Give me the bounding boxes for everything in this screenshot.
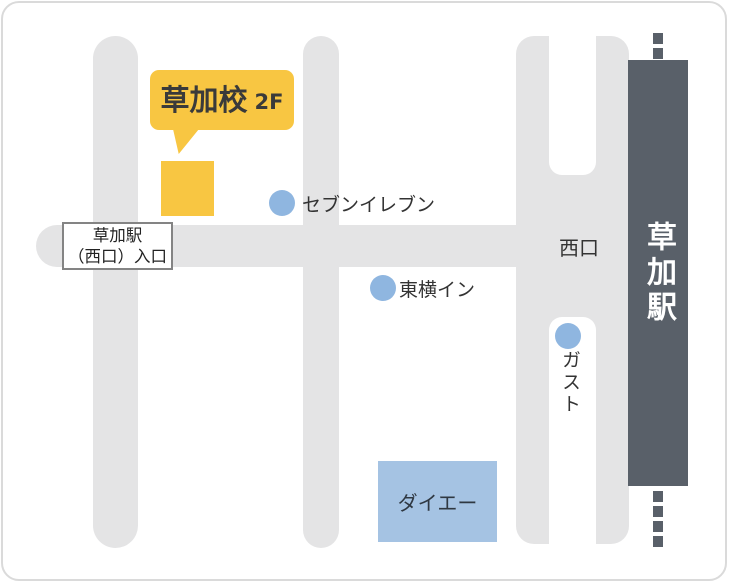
plaza-gap-top bbox=[549, 21, 596, 175]
road-vertical-middle bbox=[303, 36, 339, 548]
school-callout-bubble: 草加校 2F bbox=[150, 70, 294, 130]
west-exit-label: 西口 bbox=[559, 238, 599, 258]
daiei-label: ダイエー bbox=[398, 487, 478, 516]
railway-track-bottom bbox=[653, 491, 663, 551]
toyoko-inn-label: 東横イン bbox=[399, 281, 475, 300]
road-vertical-left bbox=[93, 36, 138, 548]
gusto-label: ガスト bbox=[560, 350, 579, 416]
school-floor: 2F bbox=[255, 88, 284, 113]
school-callout-tail bbox=[173, 129, 199, 154]
station-block: 草加駅 bbox=[628, 60, 688, 486]
gusto-marker-dot bbox=[555, 323, 581, 349]
seven-eleven-label: セブンイレブン bbox=[302, 196, 435, 215]
toyoko-inn-marker-dot bbox=[370, 275, 396, 301]
railway-track-top bbox=[653, 33, 663, 60]
station-name: 草加駅 bbox=[643, 221, 673, 326]
access-map-card: 草加駅 西口 草加校 2F 草加駅 （西口）入口 セブンイレブン 東横イン ガス… bbox=[1, 1, 727, 581]
school-building-marker bbox=[161, 161, 214, 216]
daiei-building-block: ダイエー bbox=[378, 461, 497, 542]
school-name: 草加校 bbox=[161, 86, 248, 115]
station-entrance-sign: 草加駅 （西口）入口 bbox=[62, 222, 173, 270]
entrance-sign-line2: （西口）入口 bbox=[68, 246, 167, 267]
entrance-sign-line1: 草加駅 bbox=[93, 225, 143, 246]
seven-eleven-marker-dot bbox=[269, 190, 295, 216]
